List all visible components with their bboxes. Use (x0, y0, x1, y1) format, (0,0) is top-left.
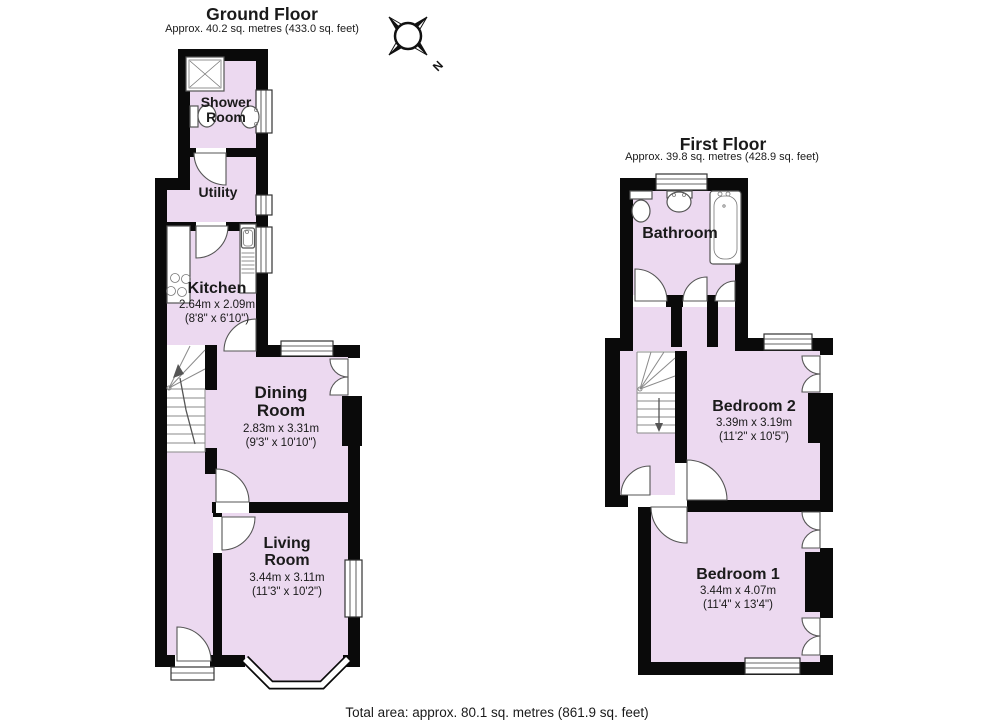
wall-segment (638, 662, 833, 675)
wall-segment (205, 345, 217, 390)
door-opening (820, 512, 833, 548)
bathroom-window (656, 174, 707, 190)
door-opening (213, 517, 222, 553)
compass-rose: N (389, 17, 446, 74)
room-label-dining-room: Dining Room 2.83m x 3.31m (9'3" x 10'10"… (243, 384, 319, 450)
floorplan-canvas: N Ground Floor Approx. 40.2 sq. metres (… (0, 0, 1000, 727)
wall-segment (155, 178, 167, 667)
door-opening (628, 495, 687, 507)
wall-segment (687, 500, 833, 512)
bedroom-2-window (764, 334, 812, 350)
utility-window (256, 195, 272, 215)
wall-segment (155, 178, 178, 190)
total-area-label: Total area: approx. 80.1 sq. metres (861… (345, 705, 648, 720)
room-label-bedroom-1: Bedroom 1 3.44m x 4.07m (11'4" x 13'4") (696, 567, 780, 612)
first-floor-stairs (637, 351, 675, 433)
door-opening (820, 618, 833, 655)
room-label-kitchen: Kitchen 2.64m x 2.09m (8'8" x 6'10") (179, 281, 255, 326)
front-door-step (171, 667, 214, 680)
wall-segment (671, 295, 682, 347)
kitchen-window (256, 227, 272, 273)
chimney-breast (805, 552, 833, 612)
dining-room-window (281, 341, 333, 356)
ground-floor-title: Ground Floor (206, 4, 318, 25)
ground-floor-subtitle: Approx. 40.2 sq. metres (433.0 sq. feet) (165, 23, 359, 35)
wall-segment (707, 295, 718, 347)
room-label-bathroom: Bathroom (642, 226, 718, 243)
compass-circle (395, 23, 421, 49)
room-label-shower-room: Shower Room (196, 95, 256, 124)
toilet-icon (630, 191, 652, 222)
ground-floor-stairs (167, 345, 205, 452)
door-opening (675, 463, 687, 500)
compass-north-label: N (430, 58, 446, 74)
wall-segment (605, 338, 620, 507)
chimney-breast (808, 393, 833, 443)
bedroom-1-window (745, 658, 800, 674)
basin-icon (667, 191, 692, 212)
room-label-bedroom-2: Bedroom 2 3.39m x 3.19m (11'2" x 10'5") (712, 399, 796, 444)
shower-tray-icon (186, 57, 224, 91)
floorplan-drawing: N (0, 0, 1000, 727)
wall-segment (620, 178, 633, 351)
wall-segment (205, 448, 217, 474)
room-label-utility: Utility (199, 185, 238, 200)
living-room-window (345, 560, 362, 617)
door-opening (348, 358, 360, 396)
door-opening (216, 502, 249, 513)
room-label-living-room: Living Room 3.44m x 3.11m (11'3" x 10'2"… (249, 536, 324, 599)
chimney-breast (342, 396, 362, 446)
door-opening (820, 355, 833, 393)
wall-segment (675, 351, 687, 463)
first-floor-subtitle: Approx. 39.8 sq. metres (428.9 sq. feet) (625, 151, 819, 163)
wall-segment (638, 507, 651, 675)
